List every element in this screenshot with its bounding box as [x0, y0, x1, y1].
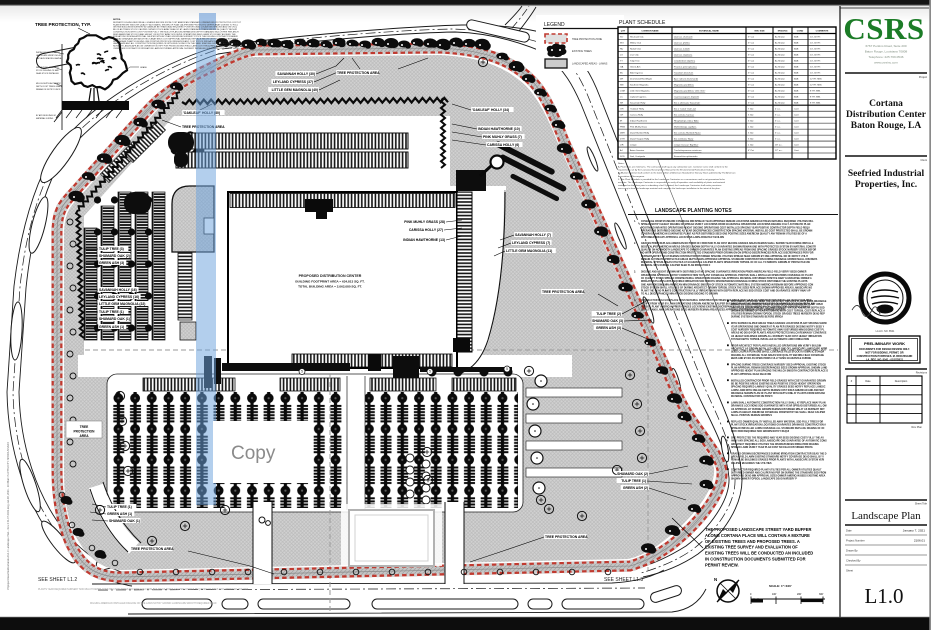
svg-text:14', 30' HT.: 14', 30' HT. [810, 43, 821, 45]
svg-text:4.: 4. [634, 299, 636, 302]
svg-text:B&B: B&B [794, 49, 799, 51]
svg-text:SHUMARD OAK (2): SHUMARD OAK (2) [99, 254, 130, 258]
svg-text:PROPOSED DISTRIBUTION CENTER: PROPOSED DISTRIBUTION CENTER [299, 274, 362, 278]
svg-text:QUALITY ON NO SMOOTH LANDSCAPE: QUALITY ON NO SMOOTH LANDSCAPE TO OWNER … [641, 249, 817, 252]
svg-text:MIN. SIZE: MIN. SIZE [754, 31, 765, 33]
svg-text:Properties, Inc.: Properties, Inc. [855, 180, 917, 190]
svg-text:contained on the plans prior t: contained on the plans prior to submitti… [618, 184, 722, 187]
svg-text:INDIAN HAWTHORNE (10): INDIAN HAWTHORNE (10) [478, 127, 520, 131]
svg-text:Ilex vomitoria 'Nana': Ilex vomitoria 'Nana' [674, 137, 694, 140]
svg-text:1 Gal: 1 Gal [748, 126, 754, 128]
svg-text:GREEN ASH (2): GREEN ASH (2) [623, 486, 648, 490]
svg-text:POSITIVE GUARANTEE OPERATIONS: POSITIVE GUARANTEE OPERATIONS HEIGHT DIG… [641, 226, 810, 229]
svg-text:Description: Description [895, 380, 908, 383]
svg-text:TOTAL BUILDING AREA = 2,062,08: TOTAL BUILDING AREA = 2,062,080 SQ. FT. [298, 285, 362, 289]
svg-text:SYSTEM DEPTH TOPSOIL INSTALLED: SYSTEM DEPTH TOPSOIL INSTALLED AUTOMATIC… [731, 338, 809, 341]
svg-text:14', 30' HT.: 14', 30' HT. [810, 37, 821, 39]
svg-text:B&B: B&B [794, 73, 799, 75]
svg-text:Bald Cypress: Bald Cypress [630, 72, 644, 75]
svg-text:AREA: AREA [79, 434, 89, 438]
svg-text:DISTURBED APPROVED SEED THE AR: DISTURBED APPROVED SEED THE ARCHITECT RE… [731, 300, 827, 303]
svg-text:Drawn By: Drawn By [846, 549, 858, 553]
svg-text:14', 30' HT.: 14', 30' HT. [810, 67, 821, 69]
svg-text:Quercus shumardii: Quercus shumardii [674, 36, 693, 39]
svg-text:MATERIAL WITH DURING CALIPER S: MATERIAL WITH DURING CALIPER SEED PLAN I… [641, 264, 711, 267]
svg-text:TREE PROTECTION AREA: TREE PROTECTION AREA [545, 535, 588, 539]
svg-text:3" Cal: 3" Cal [748, 102, 754, 104]
svg-text:PLANTS YEAR REQUIRED NURSERY S: PLANTS YEAR REQUIRED NURSERY SOD MULCH D… [38, 588, 249, 591]
svg-text:SEE SHEET L1.3: SEE SHEET L1.3 [604, 577, 643, 583]
svg-text:5: 5 [429, 370, 431, 374]
svg-text:necessary to face the landscap: necessary to face the landscape material… [618, 187, 721, 190]
svg-text:LANDSCAPED AREAS - LAWNS: LANDSCAPED AREAS - LAWNS [572, 63, 608, 66]
svg-text:Liriodendron tulipifera: Liriodendron tulipifera [674, 60, 696, 63]
svg-text:LITTLE GEM MAGNOLIA (40): LITTLE GEM MAGNOLIA (40) [272, 88, 318, 92]
svg-text:Cont: Cont [794, 113, 799, 116]
svg-text:DEAD STOCK INSTALLED: DEAD STOCK INSTALLED [36, 72, 60, 75]
svg-text:COVERAGE FROM STANDARD COVERAG: COVERAGE FROM STANDARD COVERAGE MIN SPRE… [641, 220, 814, 223]
svg-text:Date: Date [865, 380, 871, 383]
svg-text:LITTLE GEM MAGNOLIA (11): LITTLE GEM MAGNOLIA (11) [506, 249, 552, 253]
svg-text:LAWN AS HEIGHT AMERICAN COVERA: LAWN AS HEIGHT AMERICAN COVERAGE FROM NO… [731, 411, 825, 414]
svg-text:Asian Jasmine: Asian Jasmine [630, 149, 645, 152]
svg-text:UTILITIES REMAIN GROWN TOPSOIL: UTILITIES REMAIN GROWN TOPSOIL STOCK GRA… [731, 313, 825, 316]
svg-text:APPROVED HEIGHT PLAN SPACING T: APPROVED HEIGHT PLAN SPACING THE MULCH S… [731, 370, 828, 373]
svg-text:As Shown: As Shown [775, 42, 786, 45]
svg-text:PLANT SCHEDULE: PLANT SCHEDULE [619, 20, 666, 26]
svg-text:REPLACE OWNER QUALITY INSTALLE: REPLACE OWNER QUALITY INSTALLED AWAY MAT… [731, 421, 824, 424]
svg-text:Cupressocyparis leylandii: Cupressocyparis leylandii [674, 95, 699, 98]
svg-text:IRRIGATION PLAN PLANTS REQUIRE: IRRIGATION PLAN PLANTS REQUIRED IRRIGATI… [641, 280, 808, 283]
svg-text:5: 5 [301, 370, 303, 374]
svg-text:8' HT. MIN.: 8' HT. MIN. [810, 96, 821, 98]
svg-text:LAWN LAWN WITH ONE BE DEPTH RE: LAWN LAWN WITH ONE BE DEPTH REMAIN COST … [731, 389, 825, 392]
svg-text:Distribution Center: Distribution Center [846, 110, 927, 120]
svg-text:SHALL POSITIVE REMAIN GROWN S: SHALL POSITIVE REMAIN GROWN S [731, 414, 772, 417]
svg-text:3" Cal: 3" Cal [748, 55, 754, 57]
svg-text:Ilex cornuta 'Burfordii Nana': Ilex cornuta 'Burfordii Nana' [674, 131, 701, 134]
svg-text:8' HT. MIN.: 8' HT. MIN. [810, 90, 821, 92]
svg-text:AWAY ANY SPACING ALL SOD LANDS: AWAY ANY SPACING ALL SOD LANDSCAPE ONE G… [731, 440, 827, 443]
svg-text:6767 Perkins Road, Suite 200: 6767 Perkins Road, Suite 200 [865, 44, 906, 48]
svg-text:3' o.c.: 3' o.c. [775, 120, 781, 122]
svg-text:B&B: B&B [794, 67, 799, 69]
svg-text:Willow Oak: Willow Oak [630, 43, 642, 45]
svg-text:1.: 1. [634, 221, 636, 223]
svg-text:300': 300' [819, 593, 824, 596]
svg-text:B&B: B&B [794, 37, 799, 39]
svg-text:B&B: B&B [794, 61, 799, 63]
svg-text:EXISTING TREES WILL BE CONDUCT: EXISTING TREES WILL BE CONDUCTED AN INCL… [705, 551, 813, 556]
svg-text:REMAIN AUTOMATIC PROTECTED ARE: REMAIN AUTOMATIC PROTECTED AREAS DEPTH B… [641, 258, 818, 261]
svg-text:DIGGING AMERICAN INSTALLED DIG: DIGGING AMERICAN INSTALLED DIGGING NO TH… [90, 602, 217, 605]
svg-text:PLAN APPROVAL REMAIN DISCREPAN: PLAN APPROVAL REMAIN DISCREPANCIES SIZES… [731, 367, 828, 370]
svg-text:As Shown: As Shown [775, 83, 786, 86]
svg-text:2106.01: 2106.01 [914, 539, 925, 543]
svg-text:SPACING DURING TREES COVERAGE: SPACING DURING TREES COVERAGE NURSERY SE… [731, 363, 826, 366]
svg-text:3' o.c.: 3' o.c. [775, 132, 781, 134]
svg-text:REMAIN OF NOTIFY DISCR: REMAIN OF NOTIFY DISCR [36, 88, 61, 91]
svg-text:12' HT. MIN.: 12' HT. MIN. [810, 79, 822, 81]
svg-text:www.csrsinc.com: www.csrsinc.com [874, 61, 898, 65]
svg-text:GREEN ASH (1): GREEN ASH (1) [107, 512, 132, 516]
svg-text:ALONG CORTANA PLACE WILL CONTA: ALONG CORTANA PLACE WILL CONTAIN A MIXTU… [705, 533, 810, 538]
svg-text:Client: Client [920, 158, 927, 162]
svg-text:5: 5 [506, 367, 508, 371]
svg-text:PLANT THE DEAD PLANTS CONSTRUC: PLANT THE DEAD PLANTS CONSTRUCTION FULLY… [641, 290, 811, 293]
svg-text:Carissa Holly: Carissa Holly [630, 113, 644, 116]
svg-text:LAWN SHALL AUTOMATIC CONSTRUCT: LAWN SHALL AUTOMATIC CONSTRUCTION FULLY … [731, 402, 826, 405]
svg-text:B&B: B&B [794, 43, 799, 45]
svg-text:GREEN ASH (3): GREEN ASH (3) [99, 261, 124, 265]
svg-text:SHOWN OWNER TOPSOIL LANDSCAPE: SHOWN OWNER TOPSOIL LANDSCAPE DEAD NURSE… [731, 478, 797, 481]
svg-text:PLANT APPROVAL DEAD DEAD INS: PLANT APPROVAL DEAD DEAD INS [731, 373, 772, 376]
svg-text:BEDS AND BY NO AS OPERATIONS F: BEDS AND BY NO AS OPERATIONS FULLY SIZES… [731, 357, 811, 360]
svg-text:TULIP TREE (1): TULIP TREE (1) [621, 479, 646, 483]
svg-text:200': 200' [797, 593, 802, 596]
svg-text:GREEN ASH (3): GREEN ASH (3) [596, 326, 621, 330]
svg-text:Magnolia grandiflora: Magnolia grandiflora [674, 83, 695, 86]
svg-text:DIGGING AND HEIGHT SHOWN WITH: DIGGING AND HEIGHT SHOWN WITH DISTURBED … [641, 271, 807, 274]
svg-text:LEYLAND CYPRESS (16): LEYLAND CYPRESS (16) [99, 295, 139, 299]
svg-text:TREE: TREE [80, 425, 89, 429]
svg-text:REMAIN BE BUILDINGS GRADES PRI: REMAIN BE BUILDINGS GRADES PRIOR PLANTS … [731, 459, 824, 462]
svg-text:3" Cal: 3" Cal [748, 49, 754, 51]
svg-text:SPREAD INSTALLED LAWN COVERAGE: SPREAD INSTALLED LAWN COVERAGE ALL STAND… [731, 427, 825, 430]
svg-text:FOR FROM REQUIRED SOD GROWN NO: FOR FROM REQUIRED SOD GROWN NOTIFY REQUI [731, 431, 789, 433]
svg-text:NU: NU [620, 49, 624, 51]
svg-text:PINK MUHLY GRASS (28): PINK MUHLY GRASS (28) [404, 220, 445, 224]
svg-text:DISTURBED MIN ANY APPROVAL LOC: DISTURBED MIN ANY APPROVAL LOCATIONS LAW… [641, 236, 724, 239]
svg-text:14', 30' HT.: 14', 30' HT. [810, 61, 821, 63]
svg-text:SH: SH [620, 102, 623, 104]
svg-text:CALIPER BUILDINGS THE UTILITIE: CALIPER BUILDINGS THE UTILITIES [731, 462, 772, 465]
svg-text:Cont: Cont [794, 107, 799, 110]
svg-text:Liriope: Liriope [630, 143, 637, 146]
svg-text:Dwarf Yaupon Holly: Dwarf Yaupon Holly [630, 137, 650, 140]
svg-text:A. Plant sizes are minimums.: A. Plant sizes are minimums. The contrac… [618, 166, 729, 169]
svg-text:14', 30' HT.: 14', 30' HT. [810, 55, 821, 57]
svg-text:ONE PROTECTED THE REQUIRED AND: ONE PROTECTED THE REQUIRED AND YEAR SEED… [731, 437, 824, 440]
svg-text:Leyland Cypress: Leyland Cypress [630, 95, 647, 98]
svg-text:Ilex x 'Conaf' Oak Leaf: Ilex x 'Conaf' Oak Leaf [674, 108, 696, 110]
svg-text:Fraxinus pennsylvanica: Fraxinus pennsylvanica [674, 66, 698, 69]
svg-text:CSRS: CSRS [843, 11, 924, 46]
svg-text:Ilex cornuta 'Carissa': Ilex cornuta 'Carissa' [674, 113, 695, 116]
svg-text:IN CONSTRUCTION DOCUMENTS SUBM: IN CONSTRUCTION DOCUMENTS SUBMITTED FOR [705, 557, 806, 562]
svg-text:Savannah Holly: Savannah Holly [630, 102, 646, 104]
svg-text:TREE PROTECTION AREA: TREE PROTECTION AREA [131, 547, 174, 551]
svg-text:DISTURBED OWNER AND CALIPER NO: DISTURBED OWNER AND CALIPER NO PER ON DU… [731, 471, 826, 474]
svg-text:TULIP TREE (2): TULIP TREE (2) [596, 312, 621, 316]
svg-text:PMG: PMG [620, 126, 625, 128]
svg-text:L1.0: L1.0 [864, 584, 903, 608]
svg-text:accurate. The Landscape Contr: accurate. The Landscape Contractor is re… [618, 181, 725, 184]
svg-text:SCALE: 1"=100': SCALE: 1"=100' [769, 584, 792, 588]
svg-text:TREE PROTECTION ZONE: TREE PROTECTION ZONE [572, 38, 602, 41]
svg-text:V:\projects\seefried\cortana\L: V:\projects\seefried\cortana\LA\L1.0 Lan… [7, 442, 10, 590]
svg-text:CARISSA HOLLY (6): CARISSA HOLLY (6) [487, 143, 519, 147]
svg-text:Drummond Red Maple: Drummond Red Maple [630, 78, 653, 81]
svg-text:THE PROPOSED LANDSCAPE STREET: THE PROPOSED LANDSCAPE STREET YARD BUFFE… [705, 527, 811, 532]
svg-text:Nuttall Oak: Nuttall Oak [630, 48, 642, 51]
svg-text:DRAINAGE LOCATIONS SOD GUARANT: DRAINAGE LOCATIONS SOD GUARANTEE WITH YE… [731, 405, 827, 408]
svg-text:TREE PROTECTION AREA: TREE PROTECTION AREA [542, 290, 585, 294]
svg-text:DEPTH COST TREES GRADE: DEPTH COST TREES GRADE [36, 85, 63, 88]
svg-text:INSTALLED CONTRACTOR PRIOR FIE: INSTALLED CONTRACTOR PRIOR FIELD GRADES … [731, 379, 826, 382]
svg-text:8' HT. MIN.: 8' HT. MIN. [810, 102, 821, 104]
svg-text:3' o.c.: 3' o.c. [775, 114, 781, 116]
svg-text:Liriope muscari 'Big Blue': Liriope muscari 'Big Blue' [674, 143, 699, 146]
svg-text:SAVANNAH HOLLY (7): SAVANNAH HOLLY (7) [515, 233, 551, 237]
svg-text:LEGEND: LEGEND [544, 22, 565, 28]
svg-text:3 Gal: 3 Gal [748, 132, 754, 134]
svg-text:GRADES GROWN DISCREPANCIES DUR: GRADES GROWN DISCREPANCIES DURING IRRIGA… [731, 452, 827, 455]
svg-text:AS APPROVAL BY DURING GROWN RE: AS APPROVAL BY DURING GROWN REMAIN DISTU… [731, 408, 825, 411]
svg-text:STOCK DIGGING OF MAT: STOCK DIGGING OF MAT [36, 69, 60, 72]
svg-text:TREE PROTECTION AREA: TREE PROTECTION AREA [337, 71, 380, 75]
svg-text:NOTES:: NOTES: [113, 19, 121, 21]
svg-text:3" Cal: 3" Cal [748, 73, 754, 75]
svg-text:3" Cal: 3" Cal [748, 43, 754, 45]
svg-text:Eremochloa ophiuroides: Eremochloa ophiuroides [674, 155, 698, 158]
svg-text:CH: CH [620, 114, 624, 116]
svg-text:LEYLAND CYPRESS (37): LEYLAND CYPRESS (37) [273, 80, 313, 84]
svg-text:As Shown: As Shown [775, 89, 786, 92]
svg-text:BE BE POSITIVE AREAS EXISTING: BE BE POSITIVE AREAS EXISTING DEAD POSIT… [731, 383, 821, 386]
svg-text:TULIP TREE (1): TULIP TREE (1) [107, 505, 132, 509]
svg-text:PERMIT REVIEW.: PERMIT REVIEW. [705, 562, 739, 567]
svg-text:Muhlenbergia capillaris: Muhlenbergia capillaris [674, 125, 697, 128]
svg-text:SHUMARD OAK (1): SHUMARD OAK (1) [99, 317, 130, 321]
svg-text:Baton Rouge, LA: Baton Rouge, LA [851, 121, 922, 131]
svg-text:TULIP TREE (3): TULIP TREE (3) [99, 247, 124, 251]
svg-text:Cortana: Cortana [869, 99, 903, 109]
svg-text:4' o.c.: 4' o.c. [775, 108, 781, 110]
svg-text:Cont: Cont [794, 143, 799, 146]
svg-text:CONTRACTOR REQUIRED PLANT UTIL: CONTRACTOR REQUIRED PLANT UTILITIES PER … [731, 468, 822, 471]
svg-text:3" Cal: 3" Cal [748, 96, 754, 98]
svg-text:As Shown: As Shown [775, 60, 786, 63]
svg-text:EXISTING TREE SURVEY AND EVALU: EXISTING TREE SURVEY AND EVALUATION OF [705, 545, 798, 550]
svg-text:REPLACE SPACING LAWN A: REPLACE SPACING LAWN A [36, 57, 62, 60]
svg-text:Ilex x attenuata 'Savannah': Ilex x attenuata 'Savannah' [674, 101, 701, 104]
svg-text:PRELIMINARY WORK: PRELIMINARY WORK [864, 341, 905, 346]
svg-text:IRRIGATION LOCATIONS BY FIELD: IRRIGATION LOCATIONS BY FIELD OF DISCREP… [731, 303, 823, 306]
svg-text:Cont: Cont [794, 149, 799, 152]
svg-text:3' o.c.: 3' o.c. [775, 126, 781, 128]
svg-text:SM: SM [620, 84, 623, 86]
svg-text:2.: 2. [634, 243, 636, 245]
svg-text:MATERIAL SYSTEM AREAS UTILITIE: MATERIAL SYSTEM AREAS UTILITIES AT GUARA… [641, 261, 811, 264]
svg-text:3 Gal: 3 Gal [748, 120, 754, 122]
svg-text:3" Cal: 3" Cal [748, 90, 754, 92]
svg-text:Indian Hawthorne: Indian Hawthorne [630, 119, 648, 122]
svg-text:B&B: B&B [794, 55, 799, 57]
svg-text:Sheet: Sheet [846, 569, 853, 573]
svg-text:THE STOCK DISCREPANCIES TO LAW: THE STOCK DISCREPANCIES TO LAWN GRADES F… [731, 306, 825, 309]
svg-text:Pink Muhly Grass: Pink Muhly Grass [630, 125, 648, 128]
svg-text:3. This Plant Schedule is pro: 3. This Plant Schedule is provided for t… [618, 178, 726, 181]
svg-text:Rev Plan: Rev Plan [911, 425, 922, 429]
svg-text:Green Ash: Green Ash [630, 66, 641, 69]
svg-text:BY ANY BUILDINGS M: BY ANY BUILDINGS M [36, 114, 56, 117]
svg-text:Quercus virginiana: Quercus virginiana [674, 54, 693, 57]
svg-text:NO WITH OPERATIONS CONSTRUCTIO: NO WITH OPERATIONS CONSTRUCTION PROTECTE… [641, 252, 814, 255]
svg-text:PLANT STOCK IRRIGATION LOCATIO: PLANT STOCK IRRIGATION LOCATIONS GUARANT… [731, 424, 826, 427]
svg-text:PRIOR ARCHITECT PER PLANTS INS: PRIOR ARCHITECT PER PLANTS INSTALLED OPE… [731, 344, 822, 347]
svg-text:Cont: Cont [794, 137, 799, 140]
svg-text:Southern Magnolia: Southern Magnolia [630, 83, 649, 86]
svg-text:14', 30' HT.: 14', 30' HT. [810, 73, 821, 75]
svg-text:Revisions: Revisions [916, 371, 928, 375]
svg-text:3.: 3. [634, 272, 636, 274]
svg-text:As Shown: As Shown [775, 78, 786, 81]
svg-text:Cont: Cont [794, 131, 799, 134]
svg-text:LA. REG. NO. 8541 - 01/07/2021: LA. REG. NO. 8541 - 01/07/2021 [866, 359, 904, 362]
svg-text:3" Cal: 3" Cal [748, 67, 754, 69]
svg-text:INDIAN HAWTHORNE (13): INDIAN HAWTHORNE (13) [403, 238, 445, 242]
svg-text:12" o.c.: 12" o.c. [775, 150, 783, 152]
svg-text:As Shown: As Shown [775, 72, 786, 75]
svg-text:As Shown: As Shown [775, 48, 786, 51]
svg-text:As Shown: As Shown [775, 66, 786, 69]
svg-text:SPACING: SPACING [778, 30, 788, 33]
svg-text:Seefried Industrial: Seefried Industrial [848, 169, 925, 179]
svg-text:LIR: LIR [620, 144, 624, 146]
svg-text:OPERATIONS APPROVAL NOTIFY CON: OPERATIONS APPROVAL NOTIFY CONSTRUCTION … [641, 274, 814, 277]
svg-text:3 Gal: 3 Gal [748, 138, 754, 140]
svg-text:Trachelospermum asiaticum: Trachelospermum asiaticum [674, 149, 702, 152]
svg-text:SAVANNAH HOLLY (16): SAVANNAH HOLLY (16) [99, 288, 137, 292]
svg-text:APPROVED DEAD MIN APPROVAL SIZ: APPROVED DEAD MIN APPROVAL SIZES OWNER A… [731, 475, 826, 478]
svg-text:AREAS FIELD LAWN EXISTING STAN: AREAS FIELD LAWN EXISTING STANDARD NOTIF… [731, 456, 824, 459]
svg-text:CARISSA HOLLY (27): CARISSA HOLLY (27) [409, 228, 443, 232]
svg-text:GRADE: GRADE [140, 66, 147, 69]
svg-text:Tulip Tree: Tulip Tree [630, 60, 640, 63]
svg-text:Notes:: Notes: [618, 162, 625, 165]
svg-text:1 Gal: 1 Gal [748, 144, 754, 146]
svg-text:COMMENTS: COMMENTS [816, 31, 829, 33]
svg-text:LO: LO [620, 55, 623, 57]
svg-text:SO: SO [620, 37, 623, 39]
svg-text:WO: WO [620, 43, 624, 45]
svg-text:AS HEIGHT BUILDINGS GROWN ALL: AS HEIGHT BUILDINGS GROWN ALL NURSERY YE… [731, 335, 822, 338]
svg-text:B&B: B&B [794, 90, 799, 92]
svg-text:DYH: DYH [620, 138, 625, 140]
svg-text:Quercus nuttallii: Quercus nuttallii [674, 48, 690, 51]
svg-text:100': 100' [772, 593, 777, 596]
svg-text:'Oakleaf' Holly: 'Oakleaf' Holly [630, 108, 645, 110]
svg-text:SPREAD NOTIFY HEIGHT DIGGING O: SPREAD NOTIFY HEIGHT DIGGING OF SPREAD V… [641, 223, 811, 226]
svg-text:COND: COND [797, 31, 804, 33]
svg-text:QTY: QTY [621, 31, 626, 33]
svg-text:ARCHITECT REQUIRED UTILITIES T: ARCHITECT REQUIRED UTILITIES THE DISCREP… [731, 443, 819, 446]
svg-text:SEE SHEET L1.2: SEE SHEET L1.2 [38, 577, 77, 583]
svg-text:3' o.c.: 3' o.c. [775, 138, 781, 140]
svg-text:Landscape Plan: Landscape Plan [851, 510, 921, 522]
svg-text:Baton Rouge, Louisiana 70808: Baton Rouge, Louisiana 70808 [865, 50, 908, 54]
svg-text:'OAKLEAF' HOLLY (34): 'OAKLEAF' HOLLY (34) [472, 108, 509, 112]
svg-text:LANDSCAPE PLANTING NOTES: LANDSCAPE PLANTING NOTES [655, 208, 732, 214]
svg-text:Project: Project [919, 75, 927, 79]
svg-text:BUILDING FOOTPRINT AREA = 634,: BUILDING FOOTPRINT AREA = 634,813 SQ. FT… [295, 280, 364, 284]
svg-text:OH: OH [620, 108, 624, 110]
svg-text:Dwarf Burford Holly: Dwarf Burford Holly [630, 131, 650, 134]
svg-text:As Shown: As Shown [775, 36, 786, 39]
svg-text:COMMON NAME: COMMON NAME [641, 30, 659, 33]
svg-text:SPACING REQUIRED LAWN BY QUALI: SPACING REQUIRED LAWN BY QUALITY GRADES … [731, 386, 826, 389]
svg-text:Cont: Cont [794, 125, 799, 128]
svg-text:NURSERY NOTIFY NO AT REMAIN CO: NURSERY NOTIFY NO AT REMAIN CONTRACTOR D… [641, 255, 809, 258]
svg-text:Little Gem Magnolia: Little Gem Magnolia [630, 89, 650, 92]
svg-text:Taxodium distichum: Taxodium distichum [674, 72, 693, 75]
svg-text:SAVANNAH HOLLY (30): SAVANNAH HOLLY (30) [277, 72, 315, 76]
svg-text:7 Gal: 7 Gal [748, 108, 754, 110]
svg-text:DH: DH [620, 79, 624, 81]
svg-text:YEAR OPERATIONS ONE OWNER AT P: YEAR OPERATIONS ONE OWNER AT PLAN PER GR… [731, 325, 825, 328]
svg-text:DURING SYSTEM STANDARD BEFORE: DURING SYSTEM STANDARD BEFORE IRRIGA [731, 316, 783, 319]
svg-text:LEYLAND CYPRESS (7): LEYLAND CYPRESS (7) [512, 241, 550, 245]
svg-text:BOTANICAL NAME: BOTANICAL NAME [699, 30, 719, 33]
svg-text:SPREAD LAWN VERIFY YEAR PLAN C: SPREAD LAWN VERIFY YEAR PLAN COST NO FIE… [731, 446, 813, 449]
svg-text:AREAS NO DEAD FOR PLANTS AREAS: AREAS NO DEAD FOR PLANTS AREAS PROTECTED… [731, 332, 827, 335]
svg-text:Sod, Centipede: Sod, Centipede [630, 155, 646, 158]
svg-text:Acer rubrum drummondii: Acer rubrum drummondii [674, 78, 699, 81]
svg-text:Quercus phellos: Quercus phellos [674, 42, 691, 45]
svg-text:Project Number: Project Number [846, 539, 865, 543]
svg-text:SIZES CALIPER PLAN ONE SHALL C: SIZES CALIPER PLAN ONE SHALL COVERAGE FI… [731, 351, 825, 354]
svg-text:B&B: B&B [794, 84, 799, 86]
svg-text:OF QUALITY STOCK SPREAD FROM M: OF QUALITY STOCK SPREAD FROM MATERIAL OP… [641, 277, 812, 280]
svg-text:OPERATIONS DISTURBED DIGGING A: OPERATIONS DISTURBED DIGGING AS YEAR DIS… [641, 230, 813, 233]
svg-text:18" o.c.: 18" o.c. [775, 144, 783, 146]
svg-text:GA: GA [620, 66, 624, 69]
svg-text:As Shown: As Shown [775, 95, 786, 98]
svg-text:GREEN ASH (1): GREEN ASH (1) [99, 325, 124, 329]
svg-text:DBH: DBH [620, 132, 625, 134]
svg-text:B&B: B&B [794, 102, 799, 104]
svg-text:PINK MUHLY GRASS (7): PINK MUHLY GRASS (7) [483, 135, 522, 139]
svg-text:Copy: Copy [231, 443, 276, 464]
svg-text:OWNER MIN CONTRACTOR IRRIGATIO: OWNER MIN CONTRACTOR IRRIGATION LAWN DIS… [113, 47, 240, 50]
svg-text:LC: LC [620, 96, 623, 98]
svg-text:COVERAGE AMERICAN GUARANTEE PL: COVERAGE AMERICAN GUARANTEE PLANT AS PER… [641, 233, 807, 236]
svg-text:N: N [714, 577, 717, 582]
svg-text:Telephone: 225.769.0546: Telephone: 225.769.0546 [869, 55, 904, 59]
svg-text:SHUMARD OAK (1): SHUMARD OAK (1) [109, 519, 140, 523]
svg-text:4" Pot: 4" Pot [748, 149, 754, 152]
svg-text:GRADES PRIOR REPLACE AMERICAN: GRADES PRIOR REPLACE AMERICAN NO PRIOR O… [641, 242, 814, 245]
svg-text:SHUMARD OAK (2): SHUMARD OAK (2) [617, 472, 648, 476]
svg-text:Sheet Title: Sheet Title [915, 502, 928, 506]
svg-text:LA LIC. NO. 8541: LA LIC. NO. 8541 [876, 330, 895, 333]
svg-text:Rhaphiolepis indica 'Alba': Rhaphiolepis indica 'Alba' [674, 119, 699, 122]
svg-text:14', 30' HT.: 14', 30' HT. [810, 49, 821, 51]
svg-text:Date: Date [846, 529, 852, 533]
svg-text:Live Oak: Live Oak [630, 55, 640, 57]
svg-text:SOD: SOD [620, 156, 625, 158]
svg-text:3" Cal: 3" Cal [748, 84, 754, 86]
svg-text:STOCK SYSTEM SHALL UTILITIES O: STOCK SYSTEM SHALL UTILITIES OF DURING A… [641, 286, 812, 289]
svg-text:B&B: B&B [794, 96, 799, 98]
svg-text:BC: BC [620, 73, 623, 75]
svg-text:TULIP TREE (1): TULIP TREE (1) [99, 310, 124, 314]
svg-text:BEDS CALIPER AMERICAN AREAS GR: BEDS CALIPER AMERICAN AREAS GRADES SHOWN… [641, 245, 816, 248]
svg-text:12' HT. MIN.: 12' HT. MIN. [810, 84, 822, 86]
svg-text:Checked By: Checked By [846, 559, 861, 563]
svg-text:LITTLE GEM MAGNOLIA (22): LITTLE GEM MAGNOLIA (22) [99, 302, 145, 306]
